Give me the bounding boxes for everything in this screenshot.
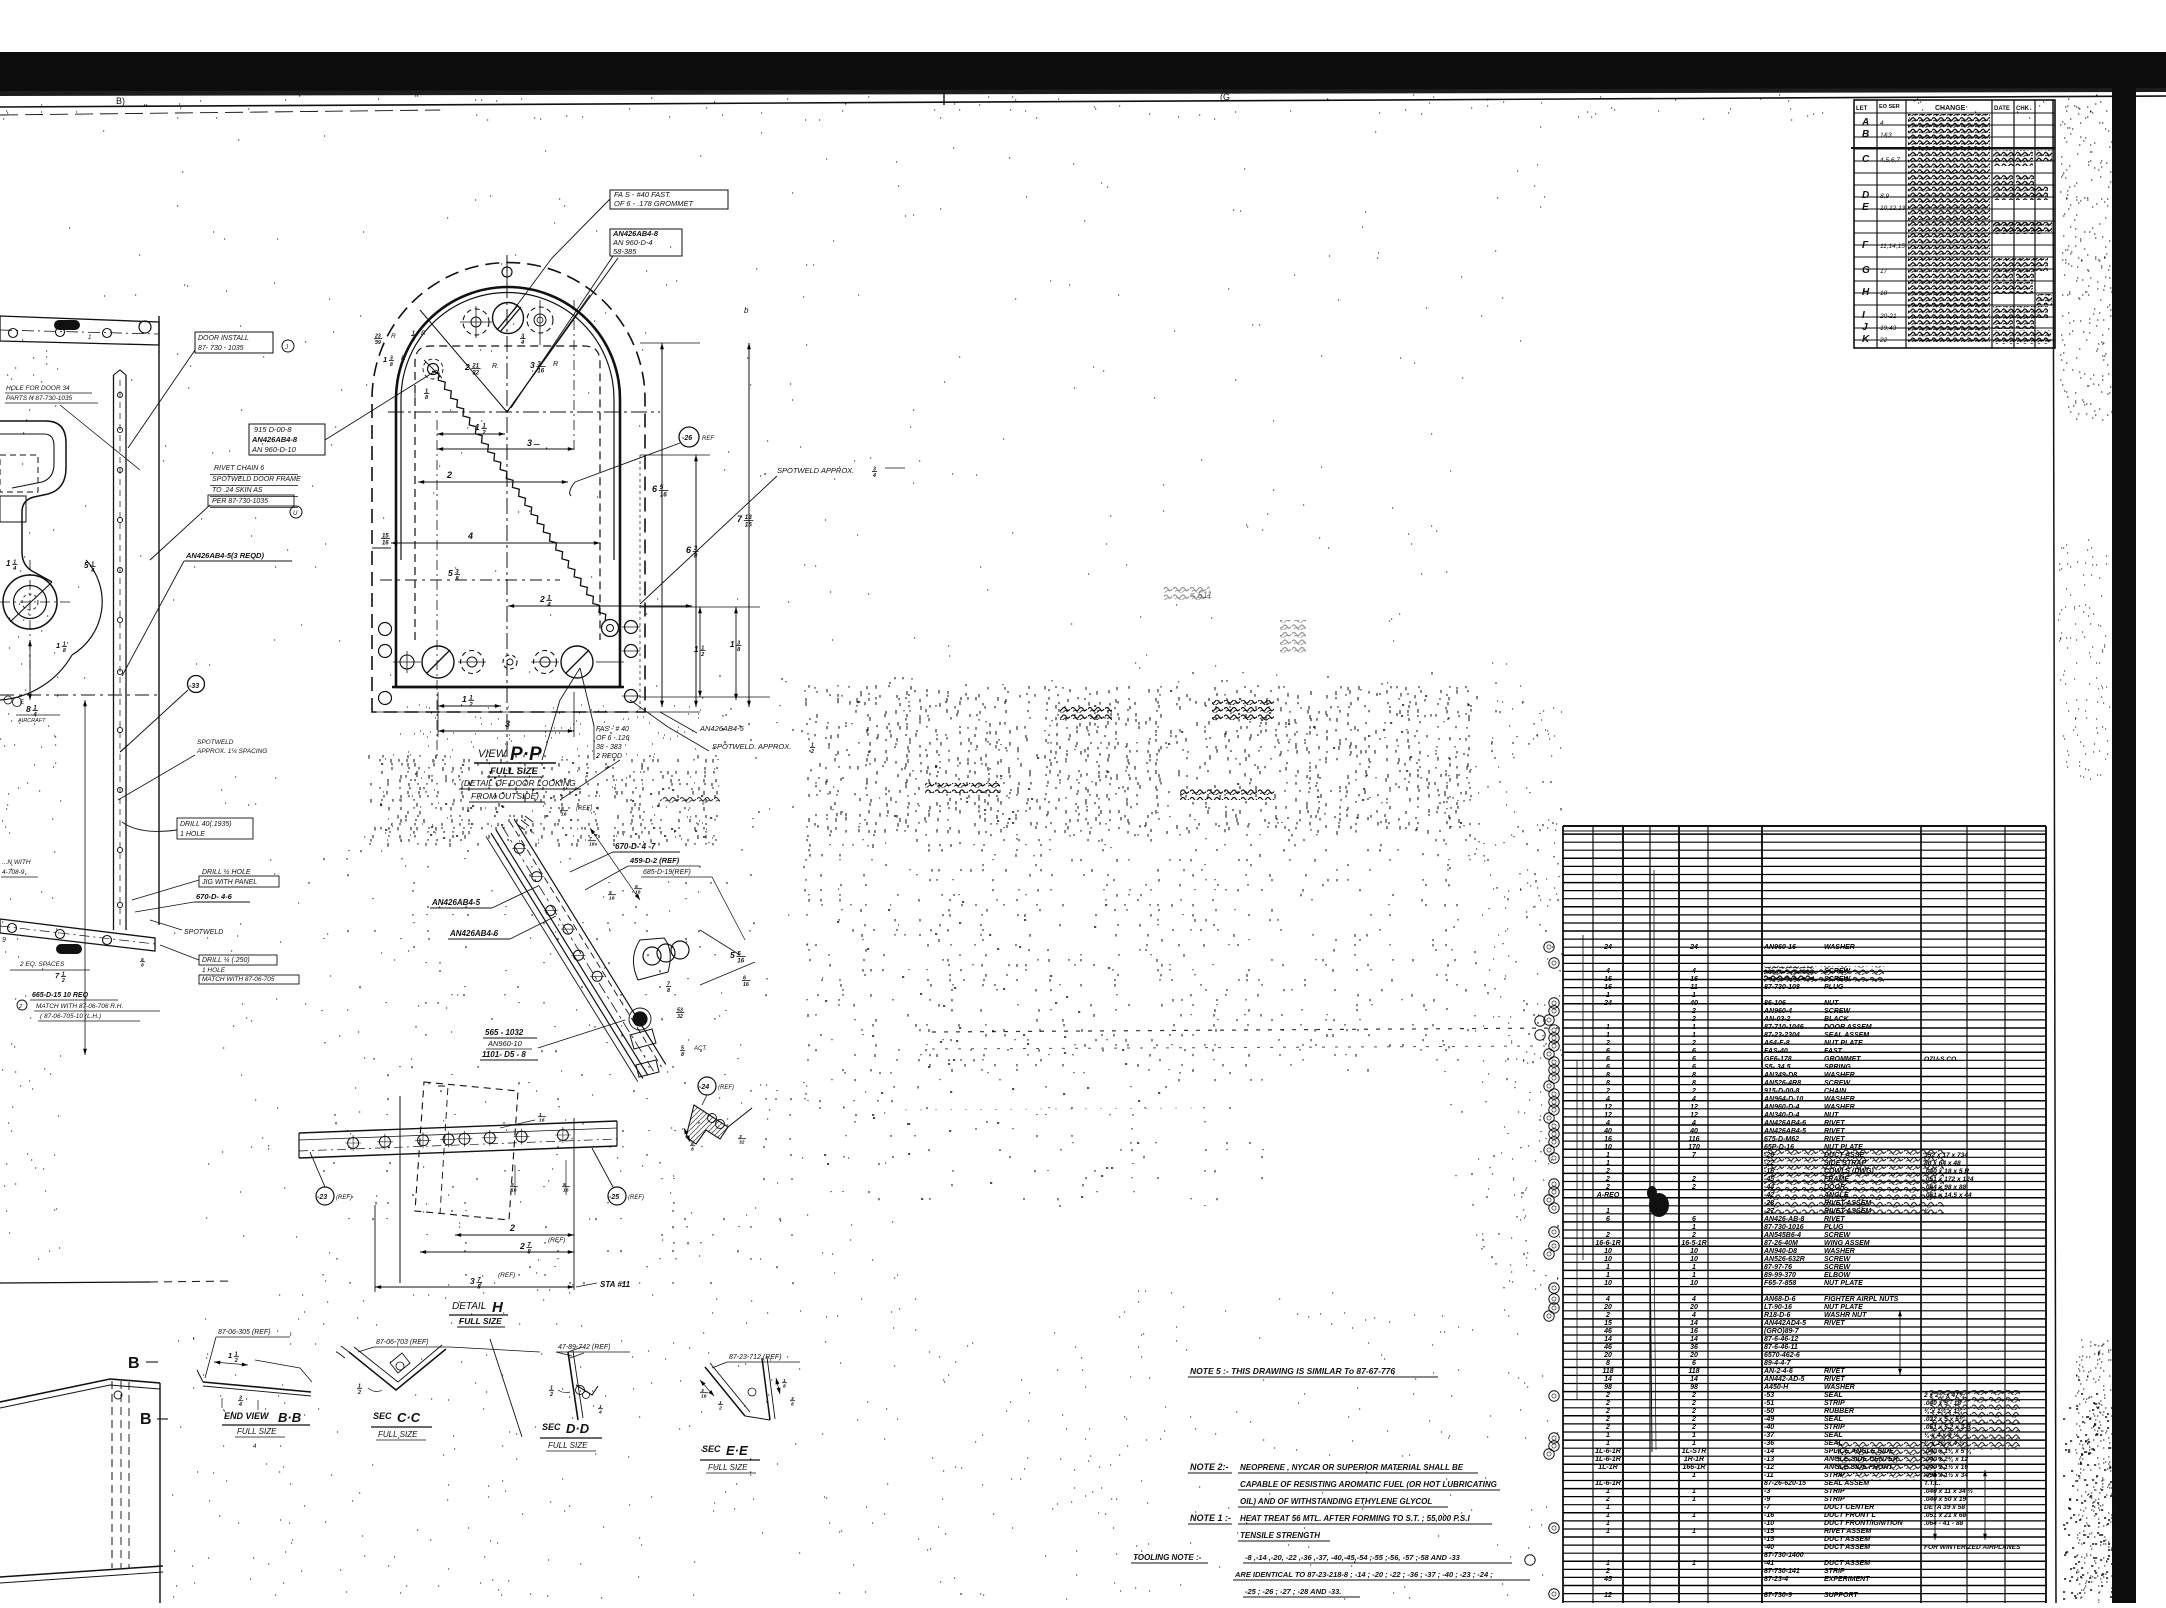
svg-text:8: 8 — [141, 963, 144, 969]
svg-text:11: 11 — [1690, 984, 1697, 991]
svg-text:2: 2 — [446, 470, 452, 480]
svg-text:98: 98 — [1604, 1384, 1612, 1391]
svg-text:PLUG: PLUG — [1824, 1224, 1844, 1231]
svg-text:6: 6 — [1692, 1048, 1696, 1055]
svg-text:1L-STR: 1L-STR — [1682, 1448, 1707, 1455]
svg-text:R: R — [401, 355, 406, 362]
svg-text:2: 2 — [539, 594, 545, 604]
svg-text:2: 2 — [549, 1392, 553, 1398]
svg-text:S5- 34.5: S5- 34.5 — [1764, 1064, 1791, 1071]
svg-text:RIVET CHAIN 6: RIVET CHAIN 6 — [214, 465, 264, 472]
svg-text:8: 8 — [791, 1402, 794, 1408]
svg-text:16: 16 — [743, 982, 749, 988]
svg-text:SEAL: SEAL — [1824, 1416, 1843, 1423]
svg-text:87-730-141: 87-730-141 — [1764, 1568, 1800, 1575]
svg-text:I: I — [1862, 310, 1865, 321]
svg-text:6570-462-6: 6570-462-6 — [1764, 1352, 1800, 1359]
svg-text:4: 4 — [1605, 1096, 1610, 1103]
svg-text:1: 1 — [1692, 1488, 1696, 1495]
svg-text:1: 1 — [1606, 1024, 1610, 1031]
svg-text:-16: -16 — [1764, 1512, 1774, 1519]
svg-text:1: 1 — [475, 422, 480, 432]
svg-text:DUCT ASSEM: DUCT ASSEM — [1824, 1560, 1870, 1567]
svg-text:B: B — [128, 1355, 140, 1372]
svg-text:RIVET: RIVET — [1824, 1376, 1845, 1383]
svg-text:1: 1 — [1692, 1560, 1696, 1567]
svg-text:DOOR INSTALL: DOOR INSTALL — [198, 335, 249, 342]
svg-text:AN426AB4-8: AN426AB4-8 — [251, 435, 298, 444]
svg-text:R.: R. — [492, 363, 499, 370]
svg-text:665-D-15 10 REQ: 665-D-15 10 REQ — [32, 992, 89, 999]
svg-text:MATCH WITH 87-06-705: MATCH WITH 87-06-705 — [202, 976, 275, 983]
svg-text:RIVET: RIVET — [1824, 1120, 1845, 1127]
svg-text:2: 2 — [1691, 1232, 1696, 1239]
svg-text:1L-6-1R: 1L-6-1R — [1595, 1456, 1621, 1463]
svg-text:RIVET: RIVET — [1824, 1216, 1845, 1223]
svg-text:...N WITH: ...N WITH — [2, 859, 31, 866]
svg-text:AN349-D8: AN349-D8 — [1763, 1072, 1797, 1079]
svg-text:1: 1 — [1692, 1032, 1696, 1039]
svg-text:1: 1 — [1692, 1224, 1696, 1231]
svg-text:WASHER: WASHER — [1824, 1096, 1855, 1103]
svg-text:16: 16 — [537, 368, 544, 374]
svg-text:14: 14 — [1604, 1376, 1612, 1383]
svg-text:38 - 383: 38 - 383 — [596, 744, 622, 751]
svg-text:-13: -13 — [1764, 1456, 1774, 1463]
svg-text:675-D-M62: 675-D-M62 — [1764, 1136, 1799, 1143]
svg-text:12: 12 — [1690, 1112, 1698, 1119]
svg-text:6: 6 — [1606, 1216, 1610, 1223]
svg-text:REF: REF — [702, 436, 714, 442]
svg-text:DUCT ASSEM: DUCT ASSEM — [1824, 1536, 1870, 1543]
svg-text:FROM OUTSIDE): FROM OUTSIDE) — [471, 791, 539, 801]
svg-text:-36: -36 — [1764, 1440, 1774, 1447]
svg-text:46: 46 — [1603, 1344, 1612, 1351]
svg-text:1: 1 — [1692, 1024, 1696, 1031]
svg-text:SCREW: SCREW — [1824, 1080, 1851, 1087]
svg-text:3: 3 — [505, 719, 510, 729]
svg-text:AN442-AD-5: AN442-AD-5 — [1763, 1376, 1805, 1383]
svg-text:3: 3 — [527, 438, 532, 448]
svg-text:SEC: SEC — [542, 1422, 561, 1432]
svg-text:1 HOLE: 1 HOLE — [202, 967, 226, 974]
svg-text:2: 2 — [468, 702, 473, 708]
svg-text:2 REQD: 2 REQD — [595, 753, 622, 760]
svg-text:1101- D5 - 8: 1101- D5 - 8 — [482, 1050, 526, 1059]
svg-text:46: 46 — [1603, 1328, 1612, 1335]
svg-text:CAPABLE OF RESISTING AROMATIC: CAPABLE OF RESISTING AROMATIC FUEL (OR H… — [1240, 1480, 1497, 1489]
svg-text:DUCT FRONT/IGNITION: DUCT FRONT/IGNITION — [1824, 1520, 1903, 1527]
svg-text:1: 1 — [462, 694, 467, 704]
svg-text:-53: -53 — [1764, 1392, 1774, 1399]
svg-text:10: 10 — [1690, 1280, 1698, 1287]
svg-text:(GRO)89-7: (GRO)89-7 — [1764, 1328, 1800, 1335]
svg-text:E: E — [1862, 202, 1869, 213]
svg-text:1: 1 — [1606, 1528, 1610, 1535]
svg-text:.051 x 21 x 68: .051 x 21 x 68 — [1924, 1512, 1966, 1519]
svg-text:-15: -15 — [1764, 1528, 1774, 1535]
svg-text:E·E: E·E — [726, 1443, 748, 1458]
svg-text:1: 1 — [1606, 1272, 1610, 1279]
svg-text:32: 32 — [739, 1140, 745, 1146]
svg-text:8: 8 — [26, 704, 31, 714]
svg-text:8: 8 — [1692, 1072, 1696, 1079]
svg-text:-40: -40 — [1764, 1544, 1774, 1551]
svg-text:-50: -50 — [1764, 1408, 1774, 1415]
svg-text:EXPERIMENT: EXPERIMENT — [1824, 1576, 1870, 1583]
svg-text:4: 4 — [1605, 1296, 1610, 1303]
svg-text:F: F — [1862, 240, 1869, 251]
svg-text:24: 24 — [1689, 944, 1698, 951]
svg-text:1: 1 — [730, 640, 735, 649]
svg-text:DETAIL: DETAIL — [452, 1301, 486, 1312]
svg-text:2: 2 — [1691, 1416, 1696, 1423]
svg-text:WASHER: WASHER — [1824, 1072, 1855, 1079]
svg-text:NUT PLATE: NUT PLATE — [1824, 1144, 1863, 1151]
svg-text:AN68-D-6: AN68-D-6 — [1763, 1296, 1796, 1303]
svg-text:SCREW: SCREW — [1824, 1264, 1851, 1271]
svg-text:2: 2 — [1605, 1424, 1610, 1431]
svg-text:NOTE 2:-: NOTE 2:- — [1190, 1462, 1229, 1472]
svg-text:SPRING: SPRING — [1824, 1064, 1851, 1071]
svg-text:b: b — [744, 306, 749, 315]
svg-text:SEAL ASSEM: SEAL ASSEM — [1824, 1480, 1869, 1487]
svg-text:SUPPORT: SUPPORT — [1824, 1592, 1858, 1599]
svg-text:APPROX. 1¼ SPACING: APPROX. 1¼ SPACING — [196, 748, 267, 755]
svg-text:DUCT ASSEM: DUCT ASSEM — [1824, 1544, 1870, 1551]
svg-text:A: A — [1861, 117, 1869, 128]
svg-text:16-6-1R: 16-6-1R — [1595, 1240, 1620, 1247]
svg-text:HEAT TREAT 56 MTL. AFTER FO: HEAT TREAT 56 MTL. AFTER FORMING TO S.T.… — [1240, 1514, 1470, 1523]
svg-text:1: 1 — [694, 645, 699, 654]
svg-text:24: 24 — [1603, 944, 1612, 951]
svg-text:B): B) — [116, 96, 125, 106]
svg-text:P·P: P·P — [510, 744, 542, 765]
svg-text:AN426AB4-8: AN426AB4-8 — [612, 229, 659, 238]
svg-text:2: 2 — [1605, 1400, 1610, 1407]
svg-text:24: 24 — [1603, 1000, 1612, 1007]
svg-text:EO SER: EO SER — [1879, 104, 1900, 110]
svg-text:1: 1 — [1606, 1032, 1610, 1039]
svg-text:16: 16 — [511, 1188, 517, 1194]
svg-text:-51: -51 — [1764, 1400, 1774, 1407]
svg-text:DRILL ¼ (.250): DRILL ¼ (.250) — [202, 957, 250, 964]
svg-text:6: 6 — [1692, 1064, 1696, 1071]
svg-text:17: 17 — [1880, 268, 1888, 275]
svg-text:AN960-4: AN960-4 — [1763, 1008, 1792, 1015]
svg-text:1: 1 — [1606, 992, 1610, 999]
svg-text:16-5-1R: 16-5-1R — [1681, 1240, 1706, 1247]
svg-text:58-385: 58-385 — [613, 247, 637, 256]
svg-text:-14: -14 — [1764, 1448, 1774, 1455]
svg-text:1&3: 1&3 — [1880, 132, 1892, 139]
svg-text:16: 16 — [1690, 976, 1698, 983]
svg-text:4: 4 — [546, 602, 551, 608]
svg-text:FOR WINTERIZED AIRPLANES: FOR WINTERIZED AIRPLANES — [1924, 1544, 2021, 1551]
svg-text:AN 960-D-4: AN 960-D-4 — [612, 238, 653, 247]
svg-text:4: 4 — [1691, 1096, 1696, 1103]
svg-text:GROMMET: GROMMET — [1824, 1056, 1861, 1063]
svg-text:4: 4 — [1691, 1120, 1696, 1127]
svg-text:4: 4 — [1691, 968, 1696, 975]
svg-text:3: 3 — [470, 1276, 475, 1286]
svg-text:2: 2 — [1605, 1416, 1610, 1423]
svg-text:1: 1 — [56, 641, 60, 650]
svg-text:1L-6-1R: 1L-6-1R — [1595, 1448, 1621, 1455]
svg-text:AN426AB4-5: AN426AB4-5 — [1763, 1128, 1806, 1135]
svg-text:20: 20 — [1689, 1304, 1698, 1311]
svg-text:8: 8 — [1606, 1072, 1610, 1079]
svg-text:AN-03-2: AN-03-2 — [1763, 1016, 1791, 1023]
svg-text:-3: -3 — [1764, 1488, 1770, 1495]
svg-text:166-1R: 166-1R — [1683, 1464, 1706, 1471]
svg-text:SCREW: SCREW — [1824, 1232, 1851, 1239]
svg-text:NUT PLATE: NUT PLATE — [1824, 1304, 1863, 1311]
svg-text:1: 1 — [1692, 1496, 1696, 1503]
svg-text:DOOR ASSEM: DOOR ASSEM — [1824, 1024, 1872, 1031]
svg-text:AN426AB4-6: AN426AB4-6 — [449, 929, 499, 938]
svg-text:2: 2 — [509, 1223, 515, 1233]
svg-text:11,14,15: 11,14,15 — [1880, 243, 1905, 250]
svg-text:12: 12 — [1604, 1592, 1612, 1599]
svg-text:OF 6 - .178 GROMMET: OF 6 - .178 GROMMET — [614, 199, 694, 208]
svg-text:DRILL 40(.1935): DRILL 40(.1935) — [180, 821, 232, 828]
svg-text:16: 16 — [737, 958, 744, 964]
svg-text:AN426AB4-6: AN426AB4-6 — [1763, 1120, 1806, 1127]
svg-text:FA S - #40 FAST.: FA S - #40 FAST. — [614, 190, 671, 199]
svg-text:19,43: 19,43 — [1880, 325, 1897, 332]
svg-text:FIGHTER AIRPL NUTS: FIGHTER AIRPL NUTS — [1824, 1296, 1899, 1303]
svg-text:-26: -26 — [682, 435, 692, 442]
svg-text:FULL SIZE: FULL SIZE — [490, 766, 539, 777]
svg-text:4: 4 — [872, 473, 876, 479]
svg-text:8: 8 — [1606, 1360, 1610, 1367]
svg-text:116: 116 — [1688, 1136, 1699, 1143]
svg-text:565 - 1032: 565 - 1032 — [485, 1028, 524, 1037]
svg-text:SPOTWELD. APPROX.: SPOTWELD. APPROX. — [712, 742, 791, 751]
svg-text:-12: -12 — [1764, 1464, 1774, 1471]
svg-text:915-D-00-8: 915-D-00-8 — [1764, 1088, 1800, 1095]
svg-text:F65-7-858: F65-7-858 — [1764, 1280, 1796, 1287]
svg-text:2: 2 — [1605, 1168, 1610, 1175]
svg-text:C: C — [1862, 154, 1870, 165]
svg-text:2: 2 — [1605, 1408, 1610, 1415]
svg-text:STA #11: STA #11 — [600, 1280, 631, 1289]
svg-text:4: 4 — [1691, 1312, 1696, 1319]
svg-text:87-97-76: 87-97-76 — [1764, 1264, 1792, 1271]
svg-text:16: 16 — [609, 896, 615, 902]
svg-text:NOTE 1 :-: NOTE 1 :- — [1190, 1513, 1231, 1523]
svg-text:2: 2 — [481, 430, 486, 436]
svg-text:16: 16 — [745, 522, 753, 529]
svg-text:FULL SIZE: FULL SIZE — [548, 1441, 588, 1450]
svg-text:SEAL: SEAL — [1824, 1432, 1843, 1439]
svg-text:4: 4 — [1605, 968, 1610, 975]
svg-text:R: R — [391, 333, 396, 340]
svg-text:12: 12 — [1604, 1104, 1612, 1111]
svg-text:D·D: D·D — [566, 1421, 590, 1436]
svg-text:14: 14 — [1690, 1336, 1698, 1343]
svg-text:TENSILE STRENGTH: TENSILE STRENGTH — [1240, 1531, 1320, 1540]
svg-text:R: R — [421, 330, 426, 337]
svg-text:2 EQ. SPACES: 2 EQ. SPACES — [19, 961, 65, 968]
svg-text:6: 6 — [1606, 1056, 1610, 1063]
svg-text:AN526-4R8: AN526-4R8 — [1763, 1080, 1801, 1087]
svg-text:87-730-108: 87-730-108 — [1764, 984, 1800, 991]
svg-text:2: 2 — [357, 1390, 361, 1396]
svg-text:G: G — [1862, 265, 1870, 276]
svg-text:4: 4 — [467, 531, 473, 541]
svg-text:2: 2 — [1691, 1176, 1696, 1183]
svg-text:87-26-40M: 87-26-40M — [1764, 1240, 1798, 1247]
svg-text:PLUG: PLUG — [1824, 984, 1844, 991]
svg-text:2: 2 — [1691, 1088, 1696, 1095]
svg-text:40: 40 — [1603, 1128, 1612, 1135]
svg-text:12: 12 — [1690, 1104, 1698, 1111]
svg-text:87-6-46-11: 87-6-46-11 — [1764, 1344, 1798, 1351]
svg-text:1: 1 — [1606, 1440, 1610, 1447]
svg-text:AN960-D-4: AN960-D-4 — [1763, 1104, 1800, 1111]
svg-text:170: 170 — [1688, 1144, 1700, 1151]
svg-text:(REF): (REF) — [576, 806, 592, 812]
svg-text:1: 1 — [228, 1351, 232, 1360]
svg-text:10,12,13: 10,12,13 — [1880, 205, 1906, 212]
svg-text:118: 118 — [1688, 1368, 1699, 1375]
svg-text:SPOTWELD: SPOTWELD — [197, 739, 234, 746]
svg-text:AN964-D-10: AN964-D-10 — [1763, 1096, 1803, 1103]
svg-text:2: 2 — [1605, 1232, 1610, 1239]
svg-text:16: 16 — [382, 540, 389, 546]
svg-text:1: 1 — [1606, 1488, 1610, 1495]
svg-text:2: 2 — [1691, 1400, 1696, 1407]
svg-text:GF6-178: GF6-178 — [1764, 1056, 1792, 1063]
svg-text:10: 10 — [1690, 1256, 1698, 1263]
svg-text:ELBOW: ELBOW — [1824, 1272, 1851, 1279]
svg-text:2: 2 — [1605, 1568, 1610, 1575]
svg-text:8: 8 — [1692, 1080, 1696, 1087]
svg-text:-25 ; -26 ; -27 ; -28 AND -33: -25 ; -26 ; -27 ; -28 AND -33. — [1245, 1587, 1341, 1596]
svg-text:OF 6 -.126: OF 6 -.126 — [596, 735, 629, 742]
svg-text:FULL SIZE: FULL SIZE — [237, 1427, 277, 1436]
svg-text:HOLE FOR DOOR 34: HOLE FOR DOOR 34 — [6, 385, 70, 392]
svg-text:T.T.L.: T.T.L. — [1924, 1480, 1941, 1487]
svg-text:SPOTWELD DOOR FRAME: SPOTWELD DOOR FRAME — [212, 476, 301, 483]
svg-text:WASHR NUT: WASHR NUT — [1824, 1312, 1867, 1319]
svg-text:NUT PLATE: NUT PLATE — [1824, 1040, 1863, 1047]
svg-text:86-106: 86-106 — [1764, 1000, 1786, 1007]
svg-text:(REF): (REF) — [498, 1272, 515, 1279]
svg-text:OZU-S CO.: OZU-S CO. — [1924, 1056, 1958, 1063]
svg-text:AN940-D8: AN940-D8 — [1763, 1248, 1797, 1255]
svg-text:87-710-1046: 87-710-1046 — [1764, 1024, 1804, 1031]
svg-text:1: 1 — [1606, 1160, 1610, 1167]
svg-text:CHANGE: CHANGE — [1935, 105, 1966, 112]
svg-text:16: 16 — [660, 492, 668, 499]
svg-text:1: 1 — [1692, 1440, 1696, 1447]
svg-text:FAS-40: FAS-40 — [1764, 1048, 1788, 1055]
svg-text:2: 2 — [1605, 1496, 1610, 1503]
svg-text:3: 3 — [530, 360, 535, 370]
svg-text:1: 1 — [1606, 1208, 1610, 1215]
svg-text:915 D-00-8: 915 D-00-8 — [254, 425, 292, 434]
svg-text:SEAL ASSEM: SEAL ASSEM — [1824, 1032, 1869, 1039]
svg-text:87-23-4: 87-23-4 — [1764, 1576, 1788, 1583]
svg-text:-24: -24 — [699, 1084, 709, 1091]
svg-text:B: B — [1862, 129, 1869, 140]
svg-text:-9: -9 — [1764, 1496, 1770, 1503]
svg-text:AN960-16: AN960-16 — [1763, 944, 1796, 951]
svg-text:NEOPRENE , NYCAR OR SUPERIOR: NEOPRENE , NYCAR OR SUPERIOR MATERIAL SH… — [1240, 1463, 1464, 1472]
svg-text:WASHER: WASHER — [1824, 1248, 1855, 1255]
svg-text:89-99-370: 89-99-370 — [1764, 1272, 1796, 1279]
svg-text:2: 2 — [1691, 1408, 1696, 1415]
svg-text:2: 2 — [810, 749, 814, 755]
svg-text:4: 4 — [1605, 1120, 1610, 1127]
svg-text:8: 8 — [63, 648, 66, 654]
svg-text:WASHER: WASHER — [1824, 944, 1855, 951]
svg-text:1L-6-1R: 1L-6-1R — [1595, 1480, 1621, 1487]
svg-text:98: 98 — [1690, 1384, 1698, 1391]
svg-text:K: K — [1862, 334, 1870, 345]
svg-text:AN-2-4-6: AN-2-4-6 — [1763, 1368, 1793, 1375]
svg-text:WING ASSEM: WING ASSEM — [1824, 1240, 1870, 1247]
svg-text:1L-1R: 1L-1R — [1598, 1464, 1617, 1471]
svg-text:2: 2 — [1605, 1392, 1610, 1399]
svg-text:1: 1 — [1692, 1264, 1696, 1271]
svg-text:RIVET: RIVET — [1824, 1320, 1845, 1327]
svg-text:PER 87-730-1035: PER 87-730-1035 — [212, 498, 268, 505]
svg-text:16: 16 — [1690, 1328, 1698, 1335]
svg-text:ACT.: ACT. — [693, 1046, 707, 1052]
svg-text:(G: (G — [1220, 92, 1230, 102]
svg-text:5: 5 — [84, 561, 89, 570]
svg-text:1: 1 — [1692, 1272, 1696, 1279]
svg-text:670-D- 4-6: 670-D- 4-6 — [196, 892, 233, 901]
svg-text:-25: -25 — [609, 1194, 619, 1201]
svg-text:4: 4 — [598, 1410, 602, 1416]
svg-text:10: 10 — [1690, 1248, 1698, 1255]
svg-text:FAST: FAST — [1824, 1048, 1843, 1055]
svg-text:1: 1 — [1606, 1264, 1610, 1271]
svg-text:1: 1 — [1606, 1152, 1610, 1159]
svg-text:LET: LET — [1856, 106, 1868, 112]
svg-text:(REF): (REF) — [718, 1085, 734, 1091]
svg-text:END VIEW: END VIEW — [224, 1411, 270, 1421]
svg-text:AN545B6-4: AN545B6-4 — [1763, 1232, 1801, 1239]
svg-text:J: J — [1862, 322, 1868, 333]
svg-text:6: 6 — [1692, 1056, 1696, 1063]
svg-text:AN426-AB-8: AN426-AB-8 — [1763, 1216, 1805, 1223]
svg-text:87-730-1400: 87-730-1400 — [1764, 1552, 1804, 1559]
svg-text:12: 12 — [1604, 1112, 1612, 1119]
svg-text:1: 1 — [1606, 1520, 1610, 1527]
svg-text:B: B — [140, 1411, 152, 1428]
svg-text:1: 1 — [1606, 1432, 1610, 1439]
svg-text:16: 16 — [1604, 1136, 1612, 1143]
svg-text:(REF): (REF) — [548, 1237, 565, 1244]
svg-text:6: 6 — [1606, 1048, 1610, 1055]
svg-text:SEC: SEC — [702, 1444, 721, 1454]
svg-text:AN426AB4-5: AN426AB4-5 — [431, 898, 481, 907]
svg-text:65P-D-16: 65P-D-16 — [1764, 1144, 1794, 1151]
svg-text:D: D — [1862, 190, 1869, 201]
svg-text:20: 20 — [1689, 1352, 1698, 1359]
svg-text:16: 16 — [561, 812, 567, 818]
svg-text:1: 1 — [1606, 1512, 1610, 1519]
svg-text:AN426AB4-5(3 REQD): AN426AB4-5(3 REQD) — [185, 551, 264, 560]
svg-text:8: 8 — [667, 988, 670, 994]
svg-text:8: 8 — [390, 362, 393, 368]
